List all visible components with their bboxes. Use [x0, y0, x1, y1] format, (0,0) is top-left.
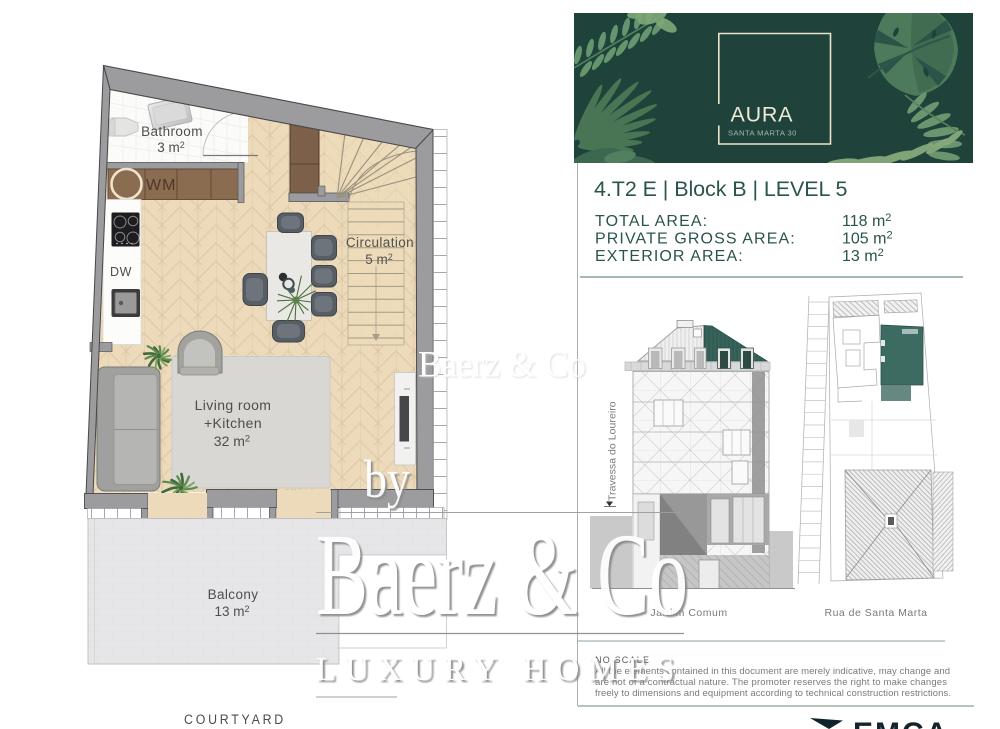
svg-text:118 m2: 118 m2 — [842, 212, 891, 230]
svg-text:COURTYARD: COURTYARD — [184, 712, 286, 727]
svg-text:13 m2: 13 m2 — [214, 604, 249, 619]
svg-text:Rua de Santa Marta: Rua de Santa Marta — [825, 607, 928, 619]
svg-text:EXTERIOR AREA:: EXTERIOR AREA: — [595, 248, 744, 265]
svg-text:DW: DW — [110, 265, 132, 279]
svg-text:by: by — [364, 449, 410, 509]
svg-text:+Kitchen: +Kitchen — [204, 415, 262, 431]
svg-text:32 m2: 32 m2 — [214, 433, 250, 449]
svg-text:Circulation: Circulation — [346, 235, 414, 250]
svg-text:EMCA: EMCA — [853, 717, 949, 729]
svg-text:4.T2 E | Block B | LEVEL 5: 4.T2 E | Block B | LEVEL 5 — [594, 177, 848, 201]
svg-text:AURA: AURA — [731, 103, 795, 127]
svg-text:PRIVATE GROSS AREA:: PRIVATE GROSS AREA: — [595, 231, 796, 248]
svg-text:Baerz & Co: Baerz & Co — [418, 345, 586, 386]
svg-text:TOTAL AREA:: TOTAL AREA: — [595, 213, 708, 230]
svg-text:Baerz & Co: Baerz & Co — [316, 509, 688, 640]
svg-text:WM: WM — [146, 177, 176, 194]
svg-text:13 m2: 13 m2 — [842, 247, 884, 265]
svg-text:SANTA MARTA 30: SANTA MARTA 30 — [728, 129, 798, 138]
svg-text:Travessa do Loureiro: Travessa do Loureiro — [607, 401, 619, 501]
svg-text:Living room: Living room — [195, 397, 272, 413]
svg-text:freely to dimensions and equip: freely to dimensions and equipment accor… — [595, 688, 951, 699]
svg-text:LUXURY HOMES: LUXURY HOMES — [316, 651, 684, 688]
svg-text:105 m2: 105 m2 — [842, 230, 893, 248]
svg-text:Balcony: Balcony — [208, 587, 259, 602]
svg-text:Bathroom: Bathroom — [141, 124, 203, 139]
